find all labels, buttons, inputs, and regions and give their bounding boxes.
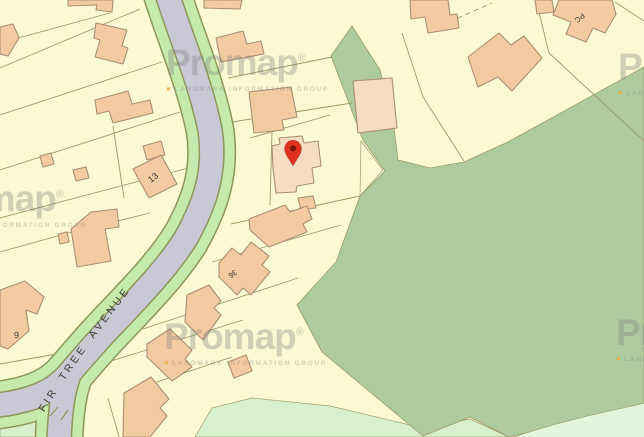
building-footprint [40,153,54,167]
building-footprint [535,0,554,14]
building-footprint [353,78,397,133]
building-footprint [94,23,128,64]
promap-map-view: { "map": { "type": "property-boundary-ma… [0,0,644,437]
building-footprint [204,0,242,9]
building-footprint [73,167,89,181]
building-footprint [58,232,69,244]
map-canvas[interactable]: 13 9 36 PC FIR TREE AVENUE [0,0,644,437]
